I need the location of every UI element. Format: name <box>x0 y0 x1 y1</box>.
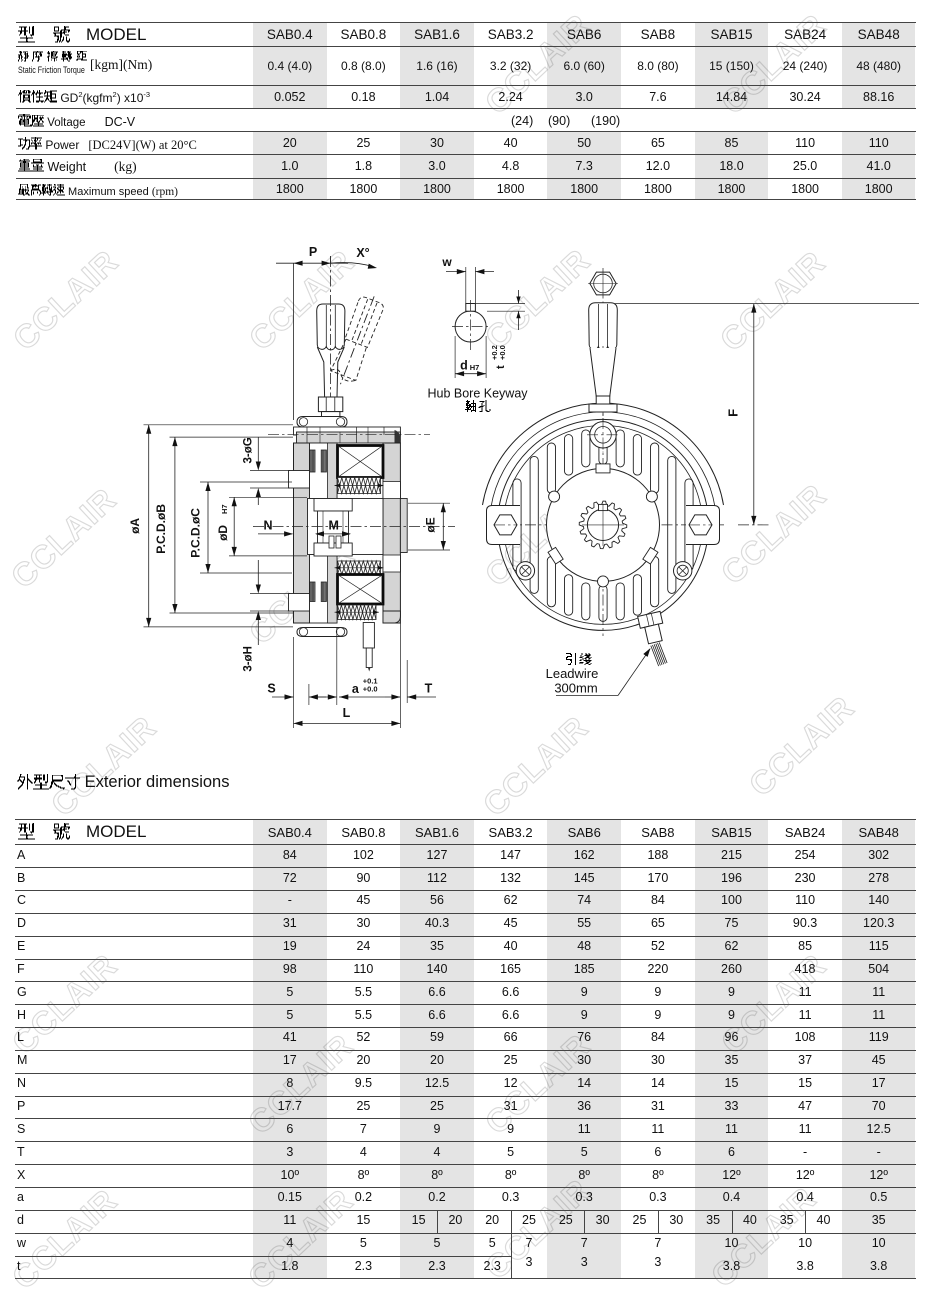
svg-text:H7: H7 <box>470 363 480 372</box>
svg-text:+0.0: +0.0 <box>363 685 378 694</box>
svg-text:P.C.D.øC: P.C.D.øC <box>188 508 202 558</box>
svg-text:M: M <box>328 519 338 533</box>
svg-text:t: t <box>495 365 507 369</box>
svg-text:L: L <box>343 706 351 720</box>
svg-text:+0.0: +0.0 <box>498 345 507 360</box>
svg-text:Leadwire: Leadwire <box>546 666 599 681</box>
svg-text:øE: øE <box>423 517 437 532</box>
svg-text:X°: X° <box>356 246 369 260</box>
svg-text:øA: øA <box>128 518 142 534</box>
svg-text:øD: øD <box>216 525 230 541</box>
svg-text:w: w <box>441 255 452 269</box>
svg-text:P: P <box>309 245 317 259</box>
svg-text:300mm: 300mm <box>554 681 597 696</box>
svg-text:3-øG: 3-øG <box>242 437 254 463</box>
svg-text:S: S <box>267 682 275 696</box>
svg-text:d: d <box>460 359 468 373</box>
svg-text:a: a <box>352 682 360 696</box>
svg-text:Hub Bore Keyway: Hub Bore Keyway <box>427 387 528 401</box>
svg-text:T: T <box>425 682 433 696</box>
svg-text:F: F <box>725 409 740 417</box>
svg-text:P.C.D.øB: P.C.D.øB <box>154 504 168 554</box>
svg-text:3-øH: 3-øH <box>242 646 254 672</box>
svg-text:H7: H7 <box>220 504 229 514</box>
svg-text:N: N <box>263 519 272 533</box>
